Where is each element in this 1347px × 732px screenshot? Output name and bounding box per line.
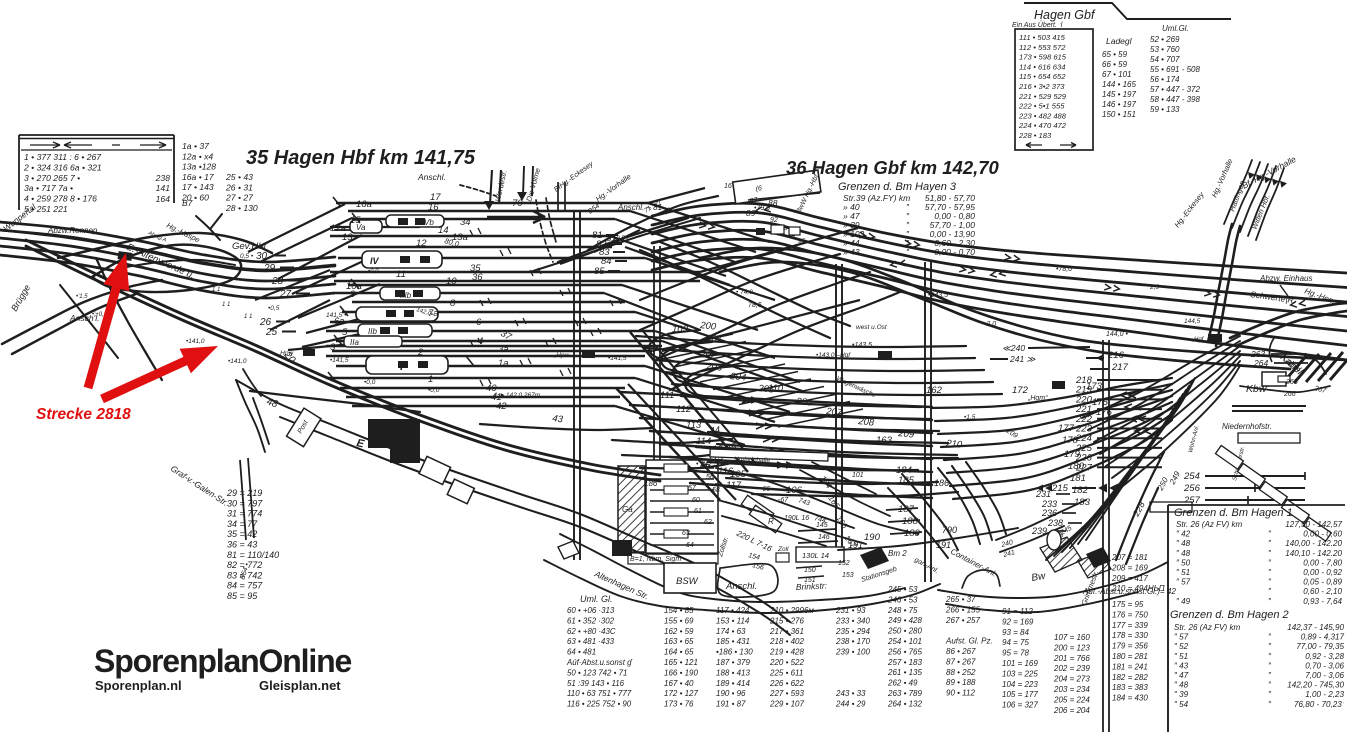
svg-text:166 • 190: 166 • 190 [664, 668, 698, 677]
svg-text:103: 103 [672, 324, 689, 335]
svg-text:0,00 - 0,70: 0,00 - 0,70 [934, 247, 975, 257]
svg-text:0,92 - 3,28: 0,92 - 3,28 [1305, 652, 1344, 661]
svg-text:16a • 17: 16a • 17 [182, 172, 215, 182]
svg-text:180 = 281: 180 = 281 [1112, 652, 1148, 661]
svg-text:254: 254 [1183, 471, 1200, 482]
svg-text:13a •128: 13a •128 [182, 162, 216, 172]
svg-text:4: 4 [478, 336, 483, 347]
svg-text:93 = 84: 93 = 84 [1002, 628, 1029, 637]
svg-text:90 • 112: 90 • 112 [946, 689, 975, 698]
svg-text:Brinkstr:: Brinkstr: [796, 580, 828, 592]
svg-text:64: 64 [686, 542, 694, 549]
svg-text:140,10 - 142.20: 140,10 - 142.20 [1285, 549, 1342, 558]
svg-text:IIb: IIb [368, 327, 377, 336]
svg-text:95: 95 [798, 238, 806, 245]
svg-text:27: 27 [279, 289, 292, 300]
svg-text:Uml. Gl.: Uml. Gl. [580, 594, 613, 604]
svg-text:Abzw.Rennep.: Abzw.Rennep. [47, 226, 100, 235]
svg-text:55: 55 [700, 464, 708, 471]
svg-text:189 • 414: 189 • 414 [716, 679, 750, 688]
svg-text:106 = 327: 106 = 327 [1002, 701, 1038, 710]
svg-text:208 = 169: 208 = 169 [1111, 563, 1148, 572]
svg-text:″ 48: ″ 48 [1176, 539, 1191, 548]
svg-text:67 • 101: 67 • 101 [1102, 70, 1132, 79]
svg-text:50 • 123 742 • 71: 50 • 123 742 • 71 [567, 668, 627, 677]
svg-text:113: 113 [686, 420, 702, 431]
svg-text:8: 8 [450, 298, 456, 309]
svg-text:77,00 - 79,35: 77,00 - 79,35 [1296, 642, 1344, 651]
svg-text:185 • 431: 185 • 431 [716, 637, 750, 646]
svg-text:-66: -66 [760, 486, 770, 493]
svg-text:89 • 188: 89 • 188 [946, 678, 976, 687]
svg-text:•0,0: •0,0 [428, 387, 440, 394]
svg-text:163: 163 [876, 435, 893, 446]
svg-text:66 • 59: 66 • 59 [1102, 60, 1128, 69]
svg-text:264 • 132: 264 • 132 [887, 699, 922, 708]
svg-text:200 = 123: 200 = 123 [1053, 643, 1090, 652]
svg-text:101 = 169: 101 = 169 [1002, 659, 1038, 668]
svg-text:241 ≫: 241 ≫ [1009, 354, 1037, 364]
svg-text:0,00 - 7,80: 0,00 - 7,80 [1303, 558, 1342, 567]
svg-text:243 • 33: 243 • 33 [835, 689, 866, 698]
svg-text:267 • 257: 267 • 257 [945, 616, 980, 625]
svg-text:19,5 •: 19,5 • [613, 236, 628, 242]
svg-text:55 • 691 - 508: 55 • 691 - 508 [1150, 65, 1201, 74]
svg-text:207 = 181: 207 = 181 [1111, 553, 1148, 562]
svg-text:209: 209 [897, 428, 916, 441]
svg-text:58: 58 [712, 487, 720, 494]
svg-text:•141,0: •141,0 [228, 358, 247, 365]
svg-text:Bm 2: Bm 2 [888, 549, 907, 558]
svg-text:256 • 765: 256 • 765 [887, 647, 922, 656]
svg-text:205 = 224: 205 = 224 [1053, 695, 1090, 704]
svg-text:209 = 417: 209 = 417 [1111, 574, 1148, 583]
svg-text:Sporenplan.nl: Sporenplan.nl [95, 678, 182, 693]
svg-text:Ein Aus Übert. ˑl: Ein Aus Übert. ˑl [1012, 21, 1063, 29]
svg-text:1,00 - 2,23: 1,00 - 2,23 [1305, 690, 1344, 699]
svg-text:Ladegl: Ladegl [1106, 36, 1133, 46]
svg-text:•186 • 130: •186 • 130 [716, 648, 753, 657]
svg-text:105 = 177: 105 = 177 [1002, 690, 1038, 699]
svg-text:6: 6 [476, 317, 482, 328]
svg-text:203 = 234: 203 = 234 [1053, 685, 1090, 694]
svg-text:231 • 93: 231 • 93 [835, 606, 866, 615]
svg-text:30 = 797: 30 = 797 [227, 498, 263, 508]
svg-text:233 • 340: 233 • 340 [835, 616, 870, 625]
svg-text:„Hpw: „Hpw [553, 352, 570, 359]
svg-text:1 • 377 311 : 6 • 267: 1 • 377 311 : 6 • 267 [24, 152, 102, 162]
svg-text:225 • 611: 225 • 611 [769, 668, 803, 677]
svg-text:201 = 766: 201 = 766 [1053, 654, 1090, 663]
svg-text:″ 43: ″ 43 [1174, 661, 1189, 670]
svg-text:221 • 529 529: 221 • 529 529 [1018, 92, 1067, 101]
svg-text:178 = 330: 178 = 330 [1112, 631, 1148, 640]
svg-text:2 • 324 316 6a • 321: 2 • 324 316 6a • 321 [23, 162, 102, 172]
svg-text:Anschl.: Anschl. [725, 581, 757, 592]
svg-text:58 • 447 - 398: 58 • 447 - 398 [1150, 95, 1201, 104]
svg-text:164 • 65: 164 • 65 [664, 648, 694, 657]
svg-text:191 • 87: 191 • 87 [716, 700, 746, 709]
svg-text:84 = 757: 84 = 757 [227, 581, 263, 591]
svg-text:141: 141 [156, 183, 171, 193]
svg-text:Umladehalle: Umladehalle [734, 456, 771, 464]
svg-text:235 • 294: 235 • 294 [835, 627, 870, 636]
svg-text:0,89 - 4,317: 0,89 - 4,317 [1301, 633, 1345, 642]
svg-text:31 = 774: 31 = 774 [227, 509, 262, 519]
svg-text:25: 25 [265, 327, 278, 338]
svg-text:0,00 - 0,60: 0,00 - 0,60 [1303, 530, 1342, 539]
svg-text:227 • 593: 227 • 593 [769, 689, 804, 698]
svg-text:88: 88 [768, 198, 778, 208]
svg-text:164: 164 [156, 194, 171, 204]
svg-text:52 • 269: 52 • 269 [1150, 35, 1180, 44]
svg-text:223 • 482 488: 223 • 482 488 [1018, 111, 1067, 120]
svg-text:3: 3 [330, 342, 336, 353]
svg-text:4 • 259 278 8 • 176: 4 • 259 278 8 • 176 [24, 194, 97, 204]
svg-text:• 2,0: • 2,0 [982, 321, 996, 328]
svg-text:107 = 160: 107 = 160 [1054, 633, 1090, 642]
svg-text:88 • 252: 88 • 252 [946, 668, 976, 677]
svg-text:57: 57 [688, 485, 697, 492]
svg-text:144,5: 144,5 [1184, 318, 1201, 325]
svg-text:145 • 197: 145 • 197 [1102, 90, 1136, 99]
svg-text:187 • 379: 187 • 379 [716, 658, 750, 667]
svg-text:0,00 - 0,92: 0,00 - 0,92 [1303, 568, 1342, 577]
svg-text:146: 146 [818, 534, 830, 541]
svg-text:172: 172 [1012, 385, 1029, 396]
svg-text:IIa: IIa [350, 338, 359, 347]
svg-text:114: 114 [696, 436, 711, 447]
svg-text:254 • 101: 254 • 101 [887, 637, 922, 646]
svg-text:224 • 470 472: 224 • 470 472 [1018, 121, 1067, 130]
svg-text:36 = 43: 36 = 43 [227, 540, 257, 550]
svg-text:219 • 428: 219 • 428 [769, 648, 804, 657]
svg-text:″ 49: ″ 49 [1176, 597, 1191, 606]
svg-text:•141,0: •141,0 [186, 338, 205, 345]
svg-text:62: 62 [704, 519, 712, 526]
svg-text:IV: IV [370, 256, 380, 266]
svg-text:244 • 29: 244 • 29 [835, 700, 866, 709]
svg-text:0,70 - 3,06: 0,70 - 3,06 [1305, 661, 1344, 670]
svg-text:14: 14 [438, 225, 449, 236]
svg-text:215: 215 [1051, 483, 1069, 494]
svg-text:92: 92 [770, 217, 778, 224]
svg-text:264: 264 [1253, 358, 1268, 368]
svg-text:28 • 130: 28 • 130 [225, 203, 258, 213]
svg-text:29 = 219: 29 = 219 [226, 488, 262, 498]
svg-text:″ 50: ″ 50 [1176, 558, 1191, 567]
svg-text:1a • 37: 1a • 37 [182, 141, 210, 151]
svg-text:110: 110 [768, 383, 784, 394]
svg-text:0,5 •: 0,5 • [240, 253, 254, 260]
svg-text:17 • 143: 17 • 143 [182, 182, 214, 192]
svg-text:220 • 522: 220 • 522 [769, 658, 804, 667]
svg-text:B=1, Nbm, Sigm: B=1, Nbm, Sigm [630, 556, 681, 563]
svg-text:182: 182 [1072, 485, 1089, 496]
svg-text:west u.Ost: west u.Ost [856, 324, 888, 331]
svg-text:111 • 503 415: 111 • 503 415 [1019, 33, 1066, 42]
svg-text:257 • 183: 257 • 183 [887, 658, 922, 667]
svg-text:190: 190 [864, 532, 881, 543]
svg-text:226 • 622: 226 • 622 [769, 679, 804, 688]
svg-text:116 • 225 752 • 90: 116 • 225 752 • 90 [567, 700, 632, 709]
svg-text:BSW: BSW [676, 576, 699, 587]
svg-text:206 = 204: 206 = 204 [1053, 706, 1090, 715]
svg-text:263 • 789: 263 • 789 [887, 689, 922, 698]
svg-text:60 • +06 ·313: 60 • +06 ·313 [567, 606, 615, 615]
svg-text:63: 63 [682, 530, 690, 537]
svg-text:12a • х4: 12a • х4 [182, 151, 213, 161]
svg-text:Gleisplan.net: Gleisplan.net [259, 678, 341, 693]
svg-text:184 = 430: 184 = 430 [1112, 694, 1148, 703]
svg-text:141,5 •: 141,5 • [326, 312, 347, 319]
svg-text:228 • 183: 228 • 183 [1018, 131, 1052, 140]
svg-text:″ 39: ″ 39 [1174, 690, 1189, 699]
svg-text:•143,5: •143,5 [928, 292, 948, 299]
svg-text:91 = 112: 91 = 112 [1002, 607, 1033, 616]
svg-text:29: 29 [263, 263, 276, 274]
svg-text:204: 204 [729, 371, 747, 384]
svg-text:Auf.-Abst.u.sonst.Gl.)= 42: Auf.-Abst.u.sonst.Gl.)= 42 [1082, 587, 1176, 596]
svg-text:Anschl.: Anschl. [417, 172, 446, 182]
svg-text:83 = 742: 83 = 742 [227, 570, 262, 580]
svg-text:11: 11 [396, 269, 406, 280]
svg-text:Grenzen d. Bm Hagen 1: Grenzen d. Bm Hagen 1 [1174, 507, 1293, 519]
svg-text:177 = 339: 177 = 339 [1112, 621, 1148, 630]
svg-text:154 • 85: 154 • 85 [664, 606, 694, 615]
svg-text:Aúf·Abst.u.sonst ɠ: Aúf·Abst.u.sonst ɠ [566, 658, 633, 667]
svg-text:•141,5: •141,5 [608, 355, 627, 362]
svg-text:12: 12 [416, 238, 427, 249]
svg-text:42: 42 [496, 401, 507, 412]
svg-text:″ 51: ″ 51 [1176, 568, 1190, 577]
svg-text:217 • 361: 217 • 361 [769, 627, 804, 636]
svg-text:204 = 273: 204 = 273 [1053, 675, 1090, 684]
svg-text:261 • 135: 261 • 135 [887, 668, 922, 677]
svg-text:Niedernhofstr.: Niedernhofstr. [1222, 422, 1272, 431]
svg-text:0,60 - 2,10: 0,60 - 2,10 [1303, 587, 1342, 596]
svg-text:218 • 402: 218 • 402 [769, 637, 804, 646]
svg-text:140,00 - 142.20: 140,00 - 142.20 [1285, 539, 1342, 548]
svg-text:153 • 114: 153 • 114 [716, 616, 750, 625]
svg-text:181: 181 [1070, 473, 1086, 484]
svg-text:78,5: 78,5 [748, 302, 762, 309]
svg-text:26 • 31: 26 • 31 [225, 182, 253, 192]
svg-text:174 • 63: 174 • 63 [716, 627, 746, 636]
svg-text:5 • 251 221: 5 • 251 221 [24, 204, 68, 214]
svg-text:1a: 1a [498, 358, 509, 369]
svg-text:210: 210 [945, 438, 964, 451]
svg-text:203: 203 [705, 361, 724, 374]
svg-text:•0,5: •0,5 [268, 305, 280, 312]
svg-text:266 • 155: 266 • 155 [945, 605, 980, 614]
svg-text:217: 217 [1111, 362, 1129, 373]
svg-text:64 • 481: 64 • 481 [567, 648, 596, 657]
svg-text:Hagen Gbf: Hagen Gbf [1034, 8, 1096, 22]
svg-text:142,37 - 145,90: 142,37 - 145,90 [1287, 623, 1344, 632]
svg-text:0,05 - 0,89: 0,05 - 0,89 [1303, 578, 1342, 587]
svg-text:146 • 197: 146 • 197 [1102, 100, 1136, 109]
svg-text:1 1: 1 1 [212, 287, 220, 293]
svg-text:162: 162 [926, 385, 943, 396]
svg-text:12a: 12a [330, 223, 346, 234]
svg-text:Zoll: Zoll [777, 546, 789, 553]
svg-text:153: 153 [842, 572, 854, 579]
svg-text:82 = 772: 82 = 772 [227, 560, 262, 570]
svg-text:181 = 241: 181 = 241 [1112, 662, 1148, 671]
svg-text:1 1: 1 1 [244, 314, 252, 320]
svg-text:190 • 96: 190 • 96 [716, 689, 746, 698]
svg-text:256: 256 [1183, 483, 1201, 494]
svg-text:35 = 42: 35 = 42 [227, 529, 257, 539]
svg-text:7,00 - 3,06: 7,00 - 3,06 [1305, 671, 1344, 680]
svg-text:34 = 77: 34 = 77 [227, 519, 258, 529]
svg-text:142,20 - 745,30: 142,20 - 745,30 [1287, 681, 1344, 690]
svg-text:114 • 616 634: 114 • 616 634 [1019, 62, 1065, 71]
svg-text:155 • 69: 155 • 69 [664, 616, 694, 625]
svg-text:27 • 27: 27 • 27 [225, 193, 254, 203]
svg-text:179 = 356: 179 = 356 [1112, 642, 1148, 651]
svg-text:61: 61 [694, 508, 702, 515]
svg-text:56 • 174: 56 • 174 [1150, 75, 1180, 84]
svg-text:″ 48: ″ 48 [1174, 681, 1189, 690]
svg-text:238: 238 [155, 173, 171, 183]
svg-text:″ 51: ″ 51 [1174, 652, 1188, 661]
svg-text:16: 16 [428, 202, 439, 213]
svg-text:246 • 53: 246 • 53 [887, 595, 918, 604]
svg-text:95 = 78: 95 = 78 [1002, 649, 1029, 658]
svg-text:165 • 121: 165 • 121 [664, 658, 698, 667]
svg-text:•0,0: •0,0 [364, 379, 376, 386]
svg-text:1 ►142,0 267m: 1 ►142,0 267m [494, 392, 541, 399]
svg-text:30: 30 [256, 251, 268, 262]
svg-text:SporenplanOnline: SporenplanOnline [94, 643, 352, 679]
svg-text:117 • 424: 117 • 424 [716, 606, 750, 615]
svg-text:Grenzen d. Bm Hayen 3: Grenzen d. Bm Hayen 3 [838, 181, 957, 193]
svg-text:54 • 707: 54 • 707 [1150, 55, 1180, 64]
svg-text:25 • 43: 25 • 43 [225, 172, 253, 182]
svg-text:173 • 598 615: 173 • 598 615 [1019, 53, 1067, 62]
svg-text:3a • 717 7a •: 3a • 717 7a • [24, 183, 73, 193]
svg-text:130L 14: 130L 14 [802, 551, 829, 560]
svg-text:250 • 280: 250 • 280 [887, 627, 922, 636]
svg-text:183 = 383: 183 = 383 [1112, 683, 1148, 692]
svg-text:3a: 3a [498, 344, 509, 355]
svg-text:61 • 352 ·302: 61 • 352 ·302 [567, 616, 615, 625]
svg-text:101: 101 [852, 472, 864, 479]
svg-text:163 • 65: 163 • 65 [664, 637, 694, 646]
svg-text:59 • 133: 59 • 133 [1150, 105, 1180, 114]
svg-text:„Hpw: „Hpw [277, 350, 294, 357]
svg-text:2: 2 [417, 347, 424, 358]
svg-text:35 Hagen Hbf km 141,75: 35 Hagen Hbf km 141,75 [246, 147, 476, 169]
svg-text:86 • 267: 86 • 267 [946, 647, 976, 656]
svg-text:104 = 223: 104 = 223 [1002, 680, 1038, 689]
svg-text:202: 202 [699, 349, 718, 362]
svg-text:53 • 760: 53 • 760 [1150, 45, 1180, 54]
svg-text:248 • 75: 248 • 75 [887, 606, 918, 615]
svg-text:(6: (6 [755, 185, 762, 193]
svg-text:36 Hagen Gbf km 142,70: 36 Hagen Gbf km 142,70 [786, 157, 1000, 178]
svg-text:56: 56 [706, 474, 714, 481]
svg-text:111: 111 [660, 390, 674, 401]
svg-text:85: 85 [594, 266, 605, 277]
svg-text:94 = 75: 94 = 75 [1002, 638, 1029, 647]
svg-text:249 • 428: 249 • 428 [887, 616, 922, 625]
svg-text:•0,0: •0,0 [368, 269, 379, 275]
svg-text:231: 231 [1035, 489, 1051, 499]
svg-text:5: 5 [342, 327, 348, 338]
svg-text:76,80 - 70,23ˑ: 76,80 - 70,23ˑ [1294, 700, 1344, 709]
svg-text:201: 201 [705, 333, 723, 346]
svg-text:175 = 95: 175 = 95 [1112, 600, 1144, 609]
svg-text:115 • 654 652: 115 • 654 652 [1019, 72, 1066, 81]
svg-text:57 • 447 - 372: 57 • 447 - 372 [1150, 85, 1201, 94]
svg-text:150 • 151: 150 • 151 [1102, 110, 1136, 119]
svg-text:162 • 59: 162 • 59 [664, 627, 694, 636]
svg-text:≪240: ≪240 [1002, 343, 1025, 353]
svg-text:• 74,0: • 74,0 [736, 289, 753, 296]
svg-text:152: 152 [838, 560, 850, 567]
svg-text:IIIb: IIIb [400, 291, 412, 300]
svg-text:112 • 553 572: 112 • 553 572 [1019, 43, 1066, 52]
svg-text:″ 42: ″ 42 [1176, 530, 1191, 539]
svg-text:10: 10 [446, 276, 457, 287]
svg-text:•78,0: •78,0 [1056, 266, 1072, 273]
svg-text:Grenzen d. Bm Hagen 2: Grenzen d. Bm Hagen 2 [1170, 609, 1289, 621]
svg-text:„Hgf: „Hgf [1191, 337, 1205, 343]
svg-text:16: 16 [724, 183, 732, 190]
svg-text:Ga: Ga [622, 505, 633, 514]
svg-text:144,0 •: 144,0 • [1106, 331, 1128, 338]
svg-text:265 • 37: 265 • 37 [945, 595, 976, 604]
svg-text:262 • 49: 262 • 49 [887, 679, 918, 688]
svg-text:215 • 276: 215 • 276 [769, 616, 804, 625]
svg-text:87 • 267: 87 • 267 [946, 657, 976, 666]
svg-text:″ 57: ″ 57 [1174, 633, 1189, 642]
svg-text:229 • 107: 229 • 107 [769, 700, 804, 709]
svg-text:144 • 165: 144 • 165 [1102, 80, 1136, 89]
svg-text:89: 89 [746, 208, 756, 218]
svg-text:R: R [768, 517, 774, 526]
svg-text:245 • 53: 245 • 53 [887, 585, 918, 594]
svg-text:9: 9 [350, 289, 356, 300]
svg-text:″ 47: ″ 47 [1174, 671, 1189, 680]
svg-text:Aufst. Gl. Pz.: Aufst. Gl. Pz. [945, 637, 993, 646]
svg-text:•'1,5: •'1,5 [76, 294, 88, 300]
svg-text:65 • 59: 65 • 59 [1102, 50, 1128, 59]
svg-text:» 43: » 43 [843, 247, 860, 257]
svg-text:172 • 127: 172 • 127 [664, 689, 698, 698]
svg-text:•141,5: •141,5 [330, 357, 349, 364]
svg-text:60: 60 [692, 497, 700, 504]
svg-text:Str. 26 (Az FV) km: Str. 26 (Az FV) km [1176, 520, 1243, 529]
svg-text:145: 145 [816, 522, 828, 529]
svg-text:63 • 481 ·433: 63 • 481 ·433 [567, 637, 615, 646]
svg-text:16a: 16a [356, 199, 372, 210]
svg-text:Strecke 2818: Strecke 2818 [36, 406, 131, 423]
svg-text:202 = 239: 202 = 239 [1053, 664, 1090, 673]
svg-text:127,50 - 142,57: 127,50 - 142,57 [1285, 520, 1342, 529]
svg-text:210 • 2996м: 210 • 2996м [769, 606, 814, 615]
svg-text:20 • 60: 20 • 60 [181, 193, 209, 203]
svg-text:216 • 3•2 373: 216 • 3•2 373 [1018, 82, 1065, 91]
svg-text:28: 28 [271, 276, 284, 287]
svg-text:62 • +80 ·43C: 62 • +80 ·43C [567, 627, 616, 636]
svg-text:Anschl. – 81: Anschl. – 81 [617, 203, 662, 212]
svg-text:222 • 5•1 555: 222 • 5•1 555 [1018, 102, 1065, 111]
svg-text:103 = 225: 103 = 225 [1002, 669, 1038, 678]
